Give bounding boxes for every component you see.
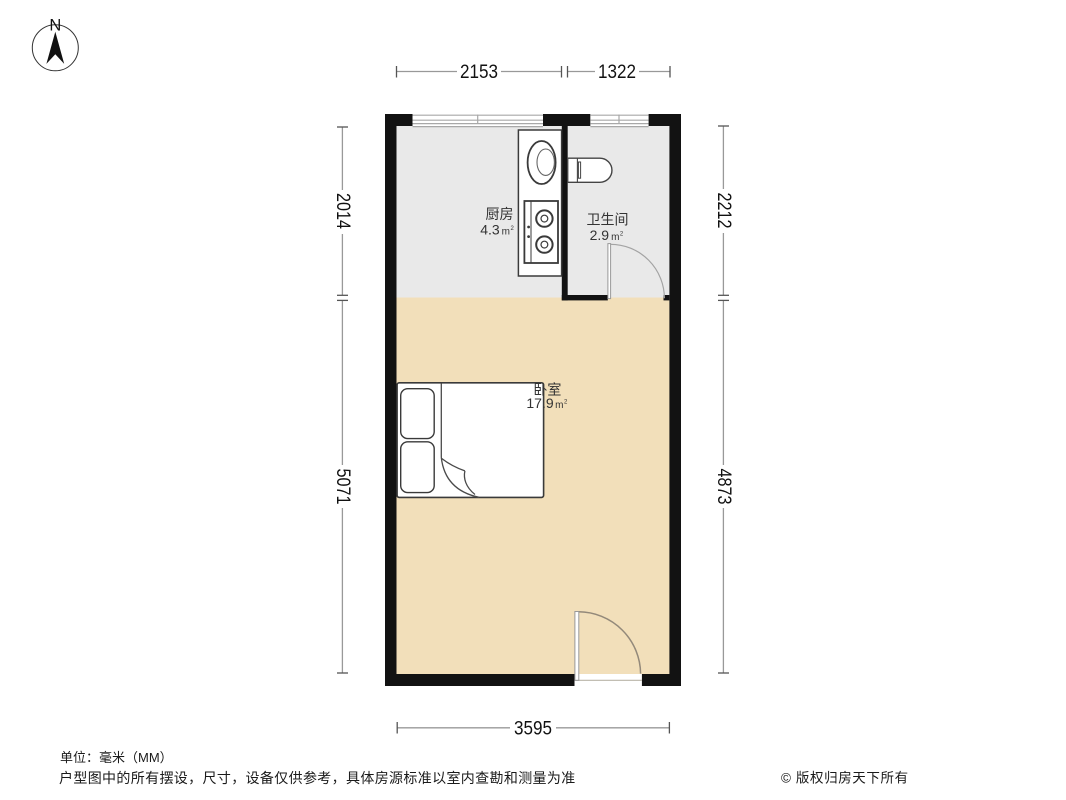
svg-text:卫生间: 卫生间 [587, 212, 629, 228]
svg-text:单位：毫米（MM）: 单位：毫米（MM） [60, 750, 173, 765]
svg-text:4873: 4873 [713, 469, 734, 505]
svg-text:5071: 5071 [332, 469, 353, 505]
svg-text:1322: 1322 [598, 61, 636, 83]
svg-text:2014: 2014 [332, 193, 353, 229]
svg-text:© 版权归房天下所有: © 版权归房天下所有 [781, 770, 909, 786]
svg-text:2153: 2153 [460, 61, 498, 83]
svg-text:N: N [49, 17, 61, 35]
svg-text:厨房: 厨房 [486, 206, 514, 222]
svg-text:3595: 3595 [514, 718, 552, 740]
svg-text:户型图中的所有摆设，尺寸，设备仅供参考，具体房源标准以室内查: 户型图中的所有摆设，尺寸，设备仅供参考，具体房源标准以室内查勘和测量为准 [59, 770, 576, 786]
svg-text:2212: 2212 [713, 193, 734, 229]
